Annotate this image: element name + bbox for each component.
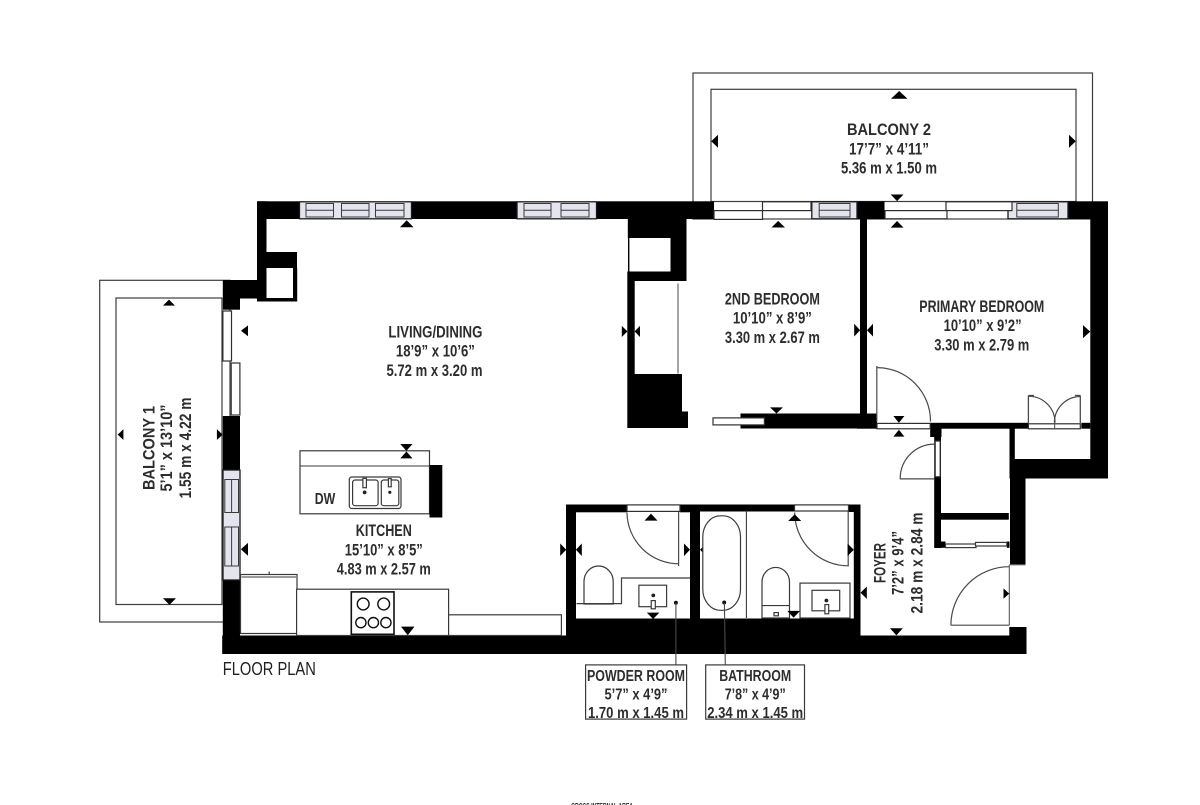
svg-text:1.70 m x 1.45 m: 1.70 m x 1.45 m	[588, 705, 684, 722]
svg-text:5’1” x 13’10”: 5’1” x 13’10”	[158, 405, 176, 492]
svg-text:KITCHEN: KITCHEN	[356, 522, 412, 540]
svg-text:5’7” x 4’9”: 5’7” x 4’9”	[605, 687, 668, 704]
svg-text:3.30 m x 2.79 m: 3.30 m x 2.79 m	[934, 336, 1029, 354]
svg-text:7’2” x 9’4”: 7’2” x 9’4”	[890, 531, 908, 595]
svg-text:4.83 m x 2.57 m: 4.83 m x 2.57 m	[337, 561, 431, 579]
svg-text:10’10” x 8’9”: 10’10” x 8’9”	[733, 309, 812, 327]
svg-text:18’9” x 10’6”: 18’9” x 10’6”	[396, 343, 475, 361]
svg-text:7’8” x 4’9”: 7’8” x 4’9”	[725, 687, 786, 704]
svg-text:PRIMARY BEDROOM: PRIMARY BEDROOM	[919, 298, 1044, 316]
svg-text:2.18 m x 2.84 m: 2.18 m x 2.84 m	[909, 513, 927, 614]
svg-text:15’10” x 8’5”: 15’10” x 8’5”	[345, 541, 423, 559]
svg-text:BALCONY 1: BALCONY 1	[141, 406, 159, 490]
svg-text:BALCONY 2: BALCONY 2	[847, 121, 931, 139]
svg-text:GROSS INTERNAL AREA: GROSS INTERNAL AREA	[571, 802, 633, 805]
svg-text:17’7” x 4’11”: 17’7” x 4’11”	[849, 140, 929, 158]
svg-text:5.72 m x 3.20 m: 5.72 m x 3.20 m	[387, 362, 483, 380]
svg-text:5.36 m x 1.50 m: 5.36 m x 1.50 m	[841, 160, 937, 178]
svg-text:10’10” x 9’2”: 10’10” x 9’2”	[944, 317, 1022, 335]
svg-text:3.30 m x 2.67 m: 3.30 m x 2.67 m	[725, 329, 820, 347]
svg-text:DW: DW	[315, 491, 336, 508]
svg-text:POWDER ROOM: POWDER ROOM	[587, 668, 685, 685]
svg-text:FLOOR PLAN: FLOOR PLAN	[223, 659, 316, 679]
svg-text:BATHROOM: BATHROOM	[719, 668, 791, 685]
svg-text:LIVING/DINING: LIVING/DINING	[388, 323, 482, 341]
svg-text:2ND BEDROOM: 2ND BEDROOM	[725, 291, 820, 309]
svg-text:FOYER: FOYER	[872, 543, 890, 583]
svg-text:2.34 m x 1.45 m: 2.34 m x 1.45 m	[707, 705, 803, 722]
svg-text:1.55 m x 4.22 m: 1.55 m x 4.22 m	[177, 398, 195, 499]
